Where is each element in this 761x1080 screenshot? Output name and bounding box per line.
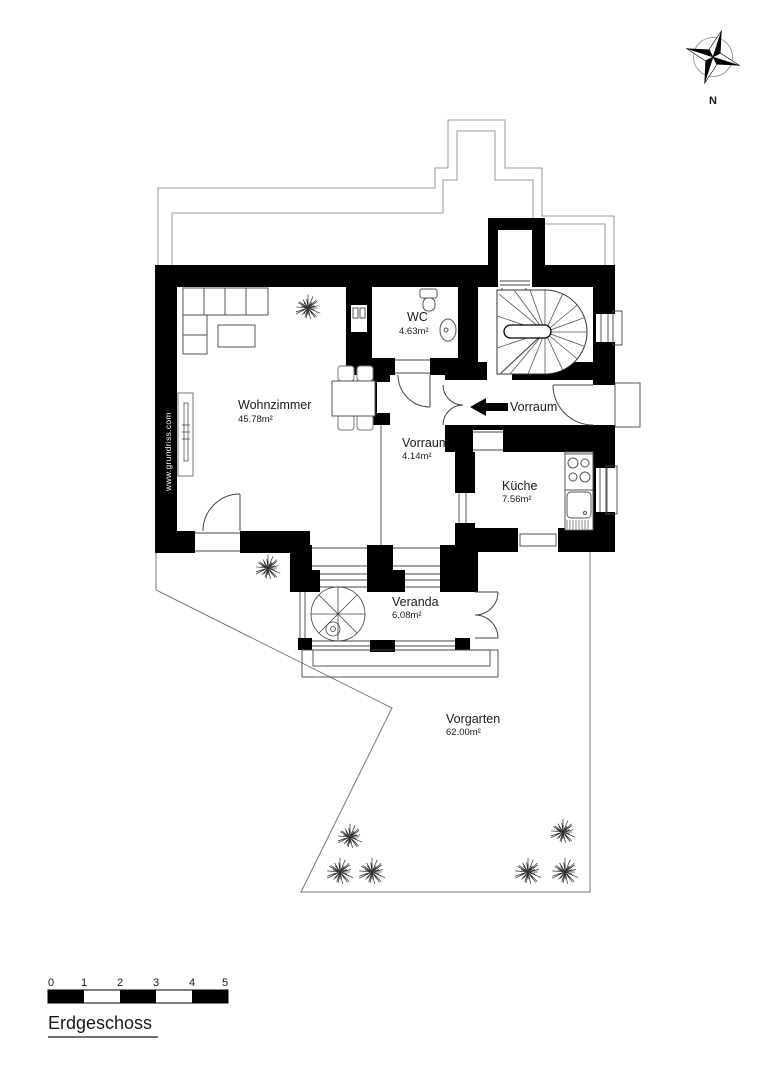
room-label-vorraum-entry: Vorraum: [510, 400, 557, 414]
shrub-icon: [296, 295, 320, 319]
radiator: [178, 393, 193, 476]
shrub-icon: [359, 858, 385, 884]
room-area: 62.00m²: [446, 727, 481, 738]
scale-tick-label: 5: [222, 977, 228, 989]
room-label-kueche: Küche 7.56m²: [502, 479, 537, 505]
room-area: 45.78m²: [238, 414, 273, 425]
room-label-vorgarten: Vorgarten 62.00m²: [446, 712, 500, 738]
compass-north-label: N: [709, 95, 717, 107]
coffee-table: [218, 325, 255, 347]
shrub-icon: [327, 858, 353, 884]
room-label-wohnzimmer: Wohnzimmer 45.78m²: [238, 398, 311, 425]
room-name: Vorraum: [510, 400, 557, 414]
garden-boundary: [156, 552, 590, 892]
scale-tick-label: 2: [117, 977, 123, 989]
entrance-arrow-icon: [470, 398, 508, 416]
room-area: 6.08m²: [392, 610, 422, 621]
shrub-icon: [256, 555, 280, 579]
kitchen-counter: [565, 452, 593, 530]
room-label-veranda: Veranda 6.08m²: [392, 595, 439, 621]
floor-title: Erdgeschoss: [48, 1013, 152, 1033]
building-outline: [158, 120, 614, 265]
room-area: 4.63m²: [399, 326, 429, 337]
floorplan-page: Wohnzimmer 45.78m² WC 4.63m² Vorraum Vor…: [0, 0, 761, 1080]
scale-tick-label: 3: [153, 977, 159, 989]
room-area: 7.56m²: [502, 494, 532, 505]
floorplan-canvas: Wohnzimmer 45.78m² WC 4.63m² Vorraum Vor…: [0, 0, 761, 1080]
scale-tick-label: 0: [48, 977, 54, 989]
room-name: WC: [407, 310, 428, 324]
room-name: Küche: [502, 479, 537, 493]
scale-tick-label: 4: [189, 977, 195, 989]
room-name: Wohnzimmer: [238, 398, 311, 412]
compass-icon: N: [678, 22, 749, 107]
room-area: 4.14m²: [402, 451, 432, 462]
room-label-vorraum: Vorraum 4.14m²: [402, 436, 449, 462]
stair-handrail: [504, 325, 551, 338]
room-name: Veranda: [392, 595, 439, 609]
walls: [155, 218, 615, 652]
room-name: Vorgarten: [446, 712, 500, 726]
floor-title-block: Erdgeschoss: [48, 1013, 158, 1037]
scale-bar: 0 1 2 3 4 5: [48, 977, 228, 1003]
room-label-wc: WC 4.63m²: [399, 310, 429, 337]
room-name: Vorraum: [402, 436, 449, 450]
dining-table: [332, 366, 375, 430]
shrub-icon: [552, 858, 578, 884]
shrub-icon: [515, 858, 541, 884]
veranda-tree-icon: [311, 587, 365, 641]
shrub-icon: [338, 824, 362, 848]
scale-tick-label: 1: [81, 977, 87, 989]
watermark: www.grundriss.com: [163, 412, 173, 492]
shrub-icon: [551, 819, 575, 843]
washbasin: [440, 319, 456, 341]
toilet: [420, 289, 437, 311]
spiral-staircase: [497, 290, 587, 374]
